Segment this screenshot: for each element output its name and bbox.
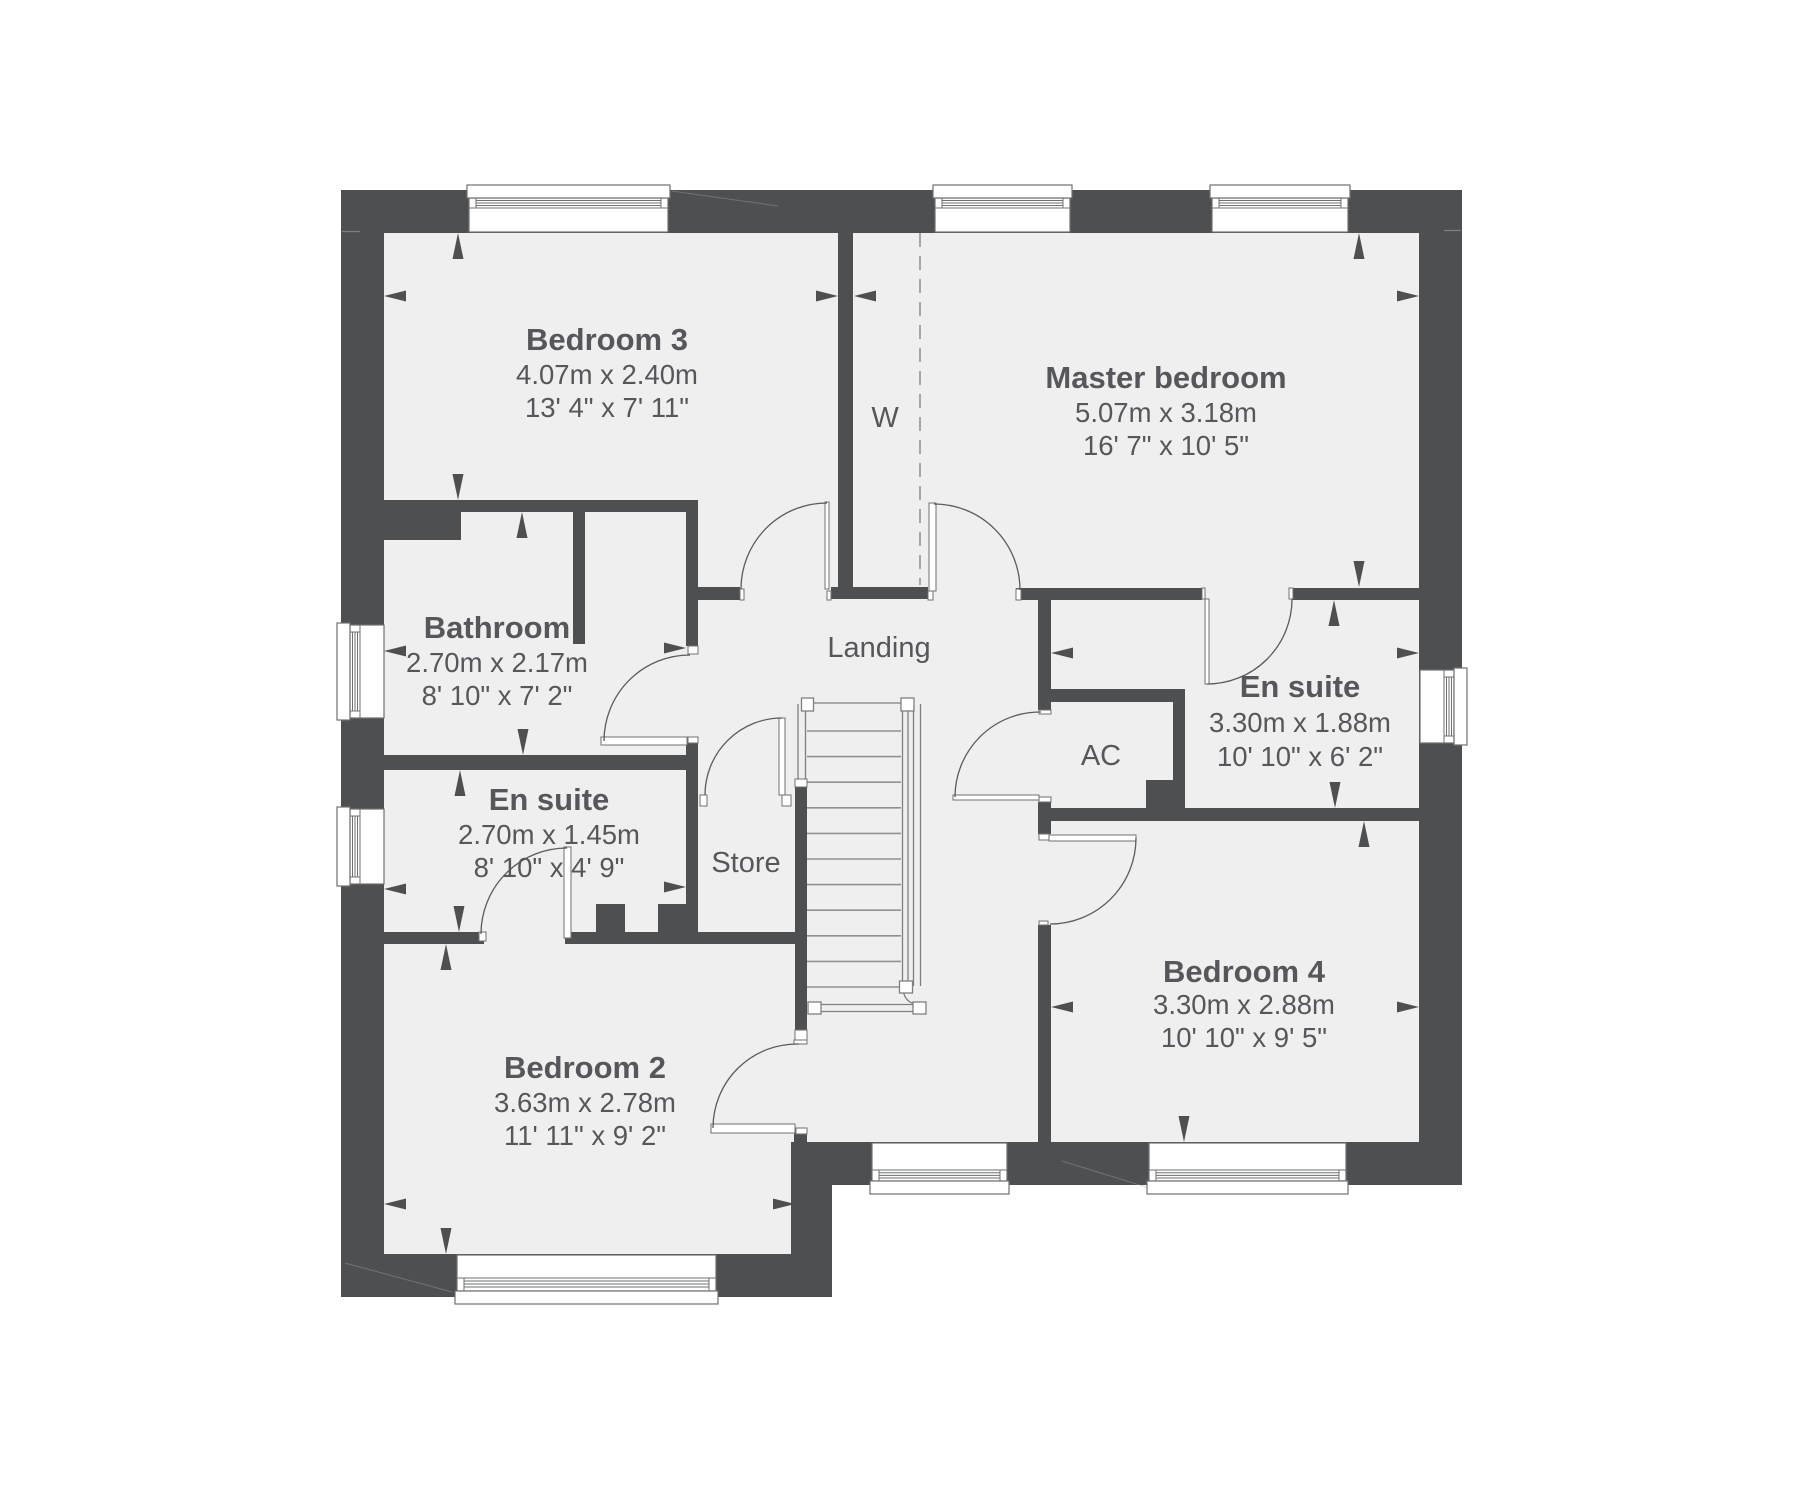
- svg-text:2.70m x 1.45m: 2.70m x 1.45m: [458, 819, 640, 850]
- svg-text:AC: AC: [1081, 740, 1121, 772]
- svg-text:En suite: En suite: [1240, 669, 1361, 704]
- svg-text:Bathroom: Bathroom: [424, 610, 570, 645]
- svg-text:Bedroom 2: Bedroom 2: [504, 1050, 666, 1085]
- svg-text:5.07m x 3.18m: 5.07m x 3.18m: [1075, 397, 1257, 428]
- svg-text:Landing: Landing: [827, 632, 930, 664]
- svg-text:Store: Store: [711, 847, 780, 879]
- svg-text:8' 10" x 4' 9": 8' 10" x 4' 9": [474, 852, 625, 883]
- svg-text:13' 4" x 7' 11": 13' 4" x 7' 11": [525, 392, 689, 423]
- svg-text:3.63m x 2.78m: 3.63m x 2.78m: [494, 1087, 676, 1118]
- svg-text:3.30m x 1.88m: 3.30m x 1.88m: [1209, 707, 1391, 738]
- svg-text:10' 10" x 9' 5": 10' 10" x 9' 5": [1161, 1022, 1327, 1053]
- svg-text:2.70m x 2.17m: 2.70m x 2.17m: [406, 647, 588, 678]
- svg-text:En suite: En suite: [489, 782, 610, 817]
- svg-text:W: W: [871, 402, 899, 434]
- svg-text:16' 7" x 10' 5": 16' 7" x 10' 5": [1083, 430, 1249, 461]
- svg-text:Bedroom 4: Bedroom 4: [1163, 954, 1326, 989]
- svg-text:3.30m x 2.88m: 3.30m x 2.88m: [1153, 989, 1335, 1020]
- svg-text:Bedroom 3: Bedroom 3: [526, 322, 688, 357]
- svg-text:8' 10" x 7' 2": 8' 10" x 7' 2": [422, 680, 573, 711]
- svg-text:10' 10" x 6' 2": 10' 10" x 6' 2": [1217, 741, 1383, 772]
- svg-text:11' 11" x 9' 2": 11' 11" x 9' 2": [504, 1120, 666, 1151]
- svg-text:4.07m x 2.40m: 4.07m x 2.40m: [516, 359, 698, 390]
- svg-text:Master bedroom: Master bedroom: [1045, 360, 1286, 395]
